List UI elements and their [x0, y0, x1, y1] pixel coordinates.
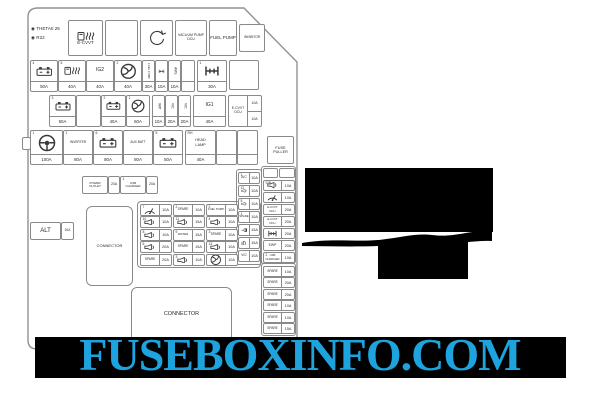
redaction-block-2: [378, 241, 468, 279]
watermark-text: FUSEBOXINFO.COM: [18, 331, 582, 381]
fuse-box-diagram: ◉ THETAII 25 ◉ R22 E-CVVTVACUUM PUMPDCUF…: [0, 0, 600, 400]
